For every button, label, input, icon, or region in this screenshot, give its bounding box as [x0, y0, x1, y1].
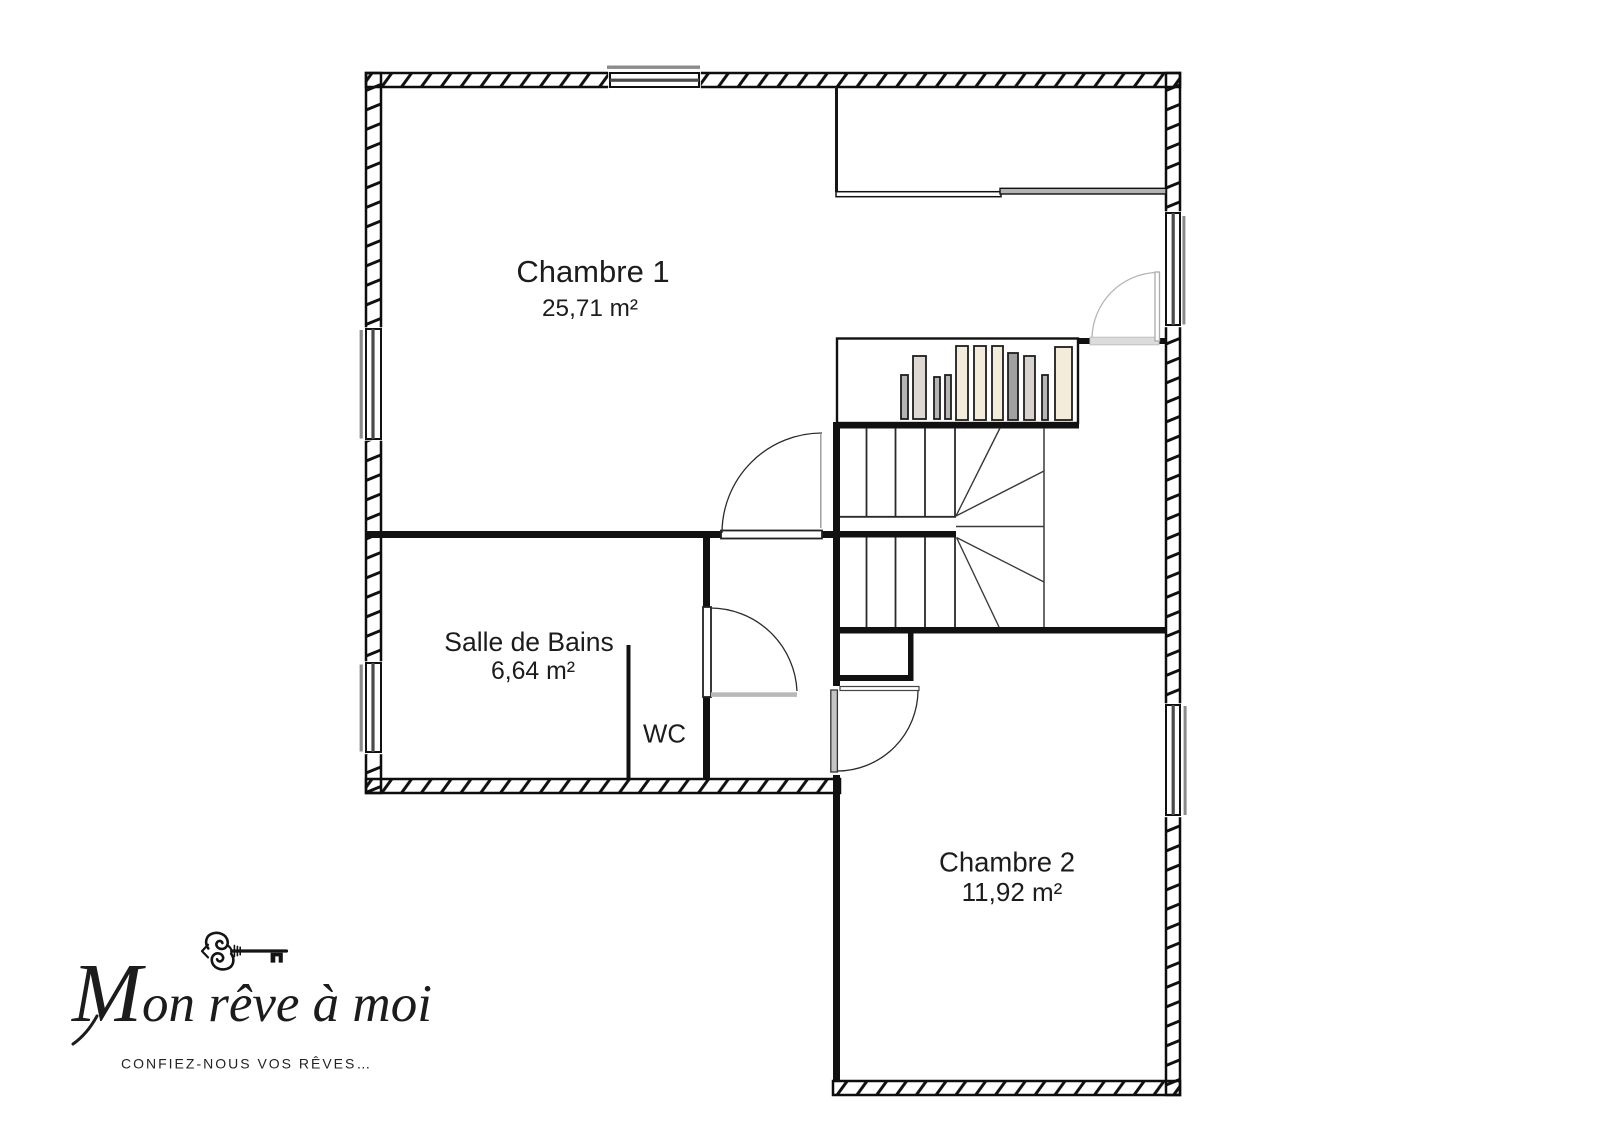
- svg-text:WC: WC: [643, 721, 686, 749]
- svg-text:CONFIEZ-NOUS VOS RÊVES…: CONFIEZ-NOUS VOS RÊVES…: [121, 1056, 372, 1072]
- svg-text:Salle de Bains: Salle de Bains: [444, 627, 613, 657]
- svg-text:Chambre 1: Chambre 1: [516, 254, 669, 289]
- svg-text:6,64 m²: 6,64 m²: [491, 658, 575, 685]
- svg-text:25,71 m²: 25,71 m²: [542, 295, 638, 322]
- svg-text:11,92 m²: 11,92 m²: [962, 877, 1063, 907]
- svg-text:Chambre 2: Chambre 2: [939, 847, 1075, 878]
